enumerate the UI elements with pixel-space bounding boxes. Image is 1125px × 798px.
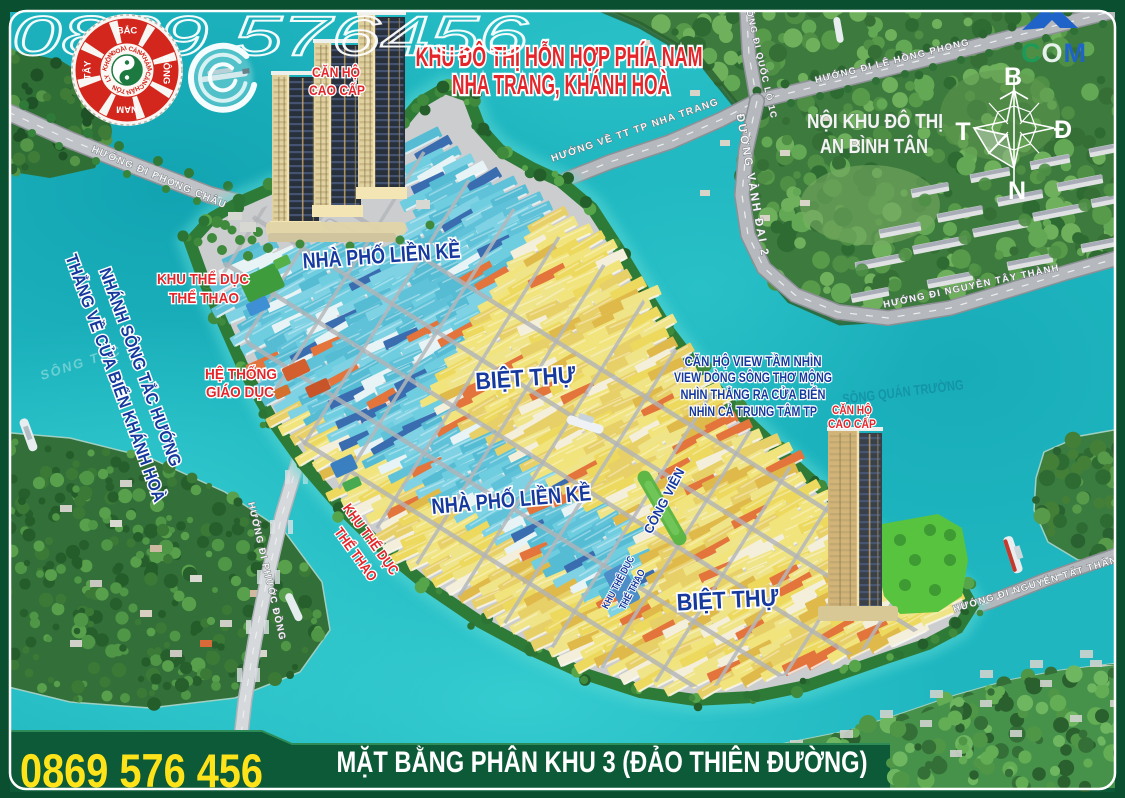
svg-text:NAM: NAM bbox=[116, 103, 138, 114]
svg-text:BIỆT THỰ: BIỆT THỰ bbox=[676, 583, 779, 616]
svg-text:T: T bbox=[955, 118, 970, 146]
svg-text:ĐÔNG: ĐÔNG bbox=[160, 56, 172, 85]
svg-text:NHÌN THẲNG RA CỬA BIỂN: NHÌN THẲNG RA CỬA BIỂN bbox=[681, 385, 826, 402]
svg-text:N: N bbox=[1008, 177, 1026, 205]
svg-text:AN BÌNH TÂN: AN BÌNH TÂN bbox=[820, 134, 928, 158]
svg-text:NỘI KHU ĐÔ THỊ: NỘI KHU ĐÔ THỊ bbox=[807, 109, 943, 133]
svg-text:HỆ THỐNG: HỆ THỐNG bbox=[205, 365, 277, 383]
svg-text:B: B bbox=[1004, 63, 1022, 91]
svg-text:CĂN HỘ: CĂN HỘ bbox=[832, 404, 872, 417]
svg-text:TÂY: TÂY bbox=[82, 60, 94, 80]
svg-text:NHA TRANG, KHÁNH HOÀ: NHA TRANG, KHÁNH HOÀ bbox=[452, 69, 670, 100]
svg-text:CAO CẤP: CAO CẤP bbox=[309, 82, 365, 98]
svg-text:KHU THỂ DỤC: KHU THỂ DỤC bbox=[157, 270, 249, 288]
svg-text:BẮC: BẮC bbox=[117, 26, 138, 37]
svg-text:VIEW DÒNG SÔNG THƠ MỘNG: VIEW DÒNG SÔNG THƠ MỘNG bbox=[674, 368, 832, 385]
svg-text:CAO CẤP: CAO CẤP bbox=[828, 418, 876, 431]
svg-text:NHÌN CẢ TRUNG TÂM TP: NHÌN CẢ TRUNG TÂM TP bbox=[689, 402, 817, 419]
svg-text:COM: COM bbox=[1021, 38, 1087, 68]
svg-text:Đ: Đ bbox=[1054, 116, 1072, 144]
svg-text:MẶT BẰNG PHÂN KHU 3 (ĐẢO THIÊN: MẶT BẰNG PHÂN KHU 3 (ĐẢO THIÊN ĐƯỜNG) bbox=[337, 745, 868, 779]
svg-text:CĂN HỘ VIEW TẦM NHÌN: CĂN HỘ VIEW TẦM NHÌN bbox=[685, 352, 822, 369]
svg-text:THỂ THAO: THỂ THAO bbox=[169, 289, 239, 307]
svg-text:GIÁO DỤC: GIÁO DỤC bbox=[206, 384, 274, 401]
